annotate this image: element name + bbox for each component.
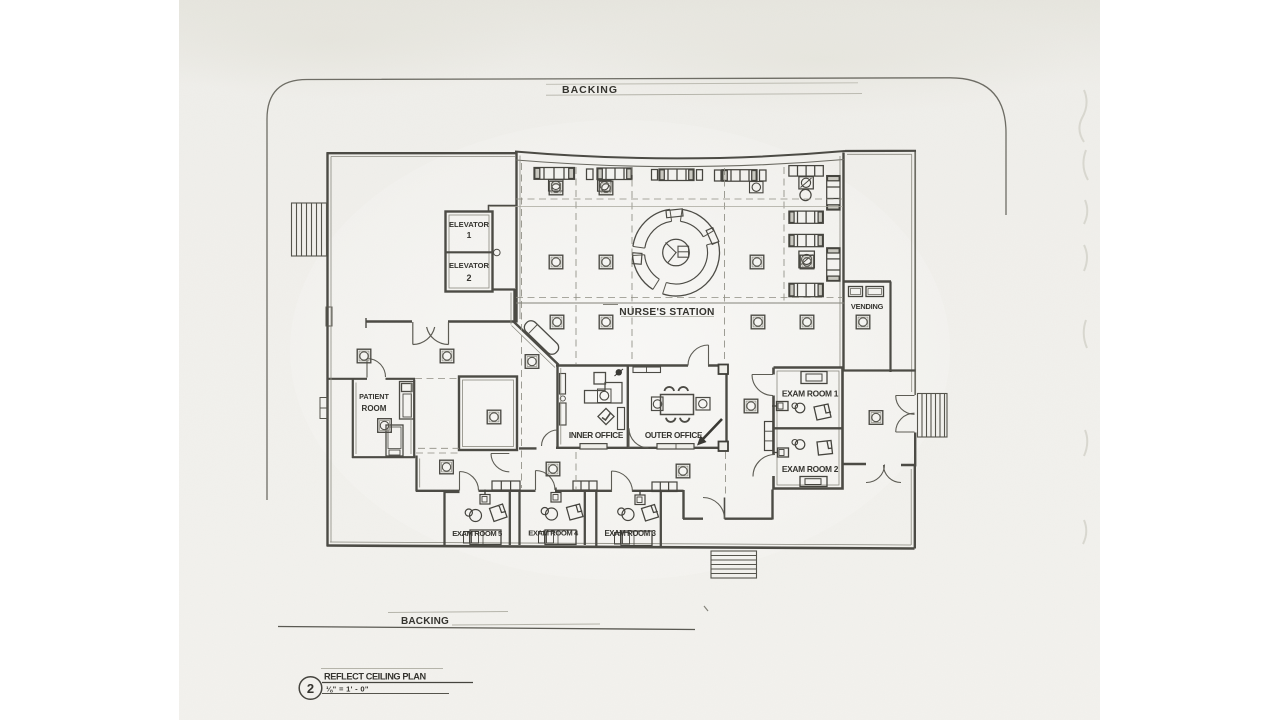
svg-text:EXAM ROOM 2: EXAM ROOM 2 — [782, 464, 839, 474]
svg-text:2: 2 — [466, 273, 471, 283]
svg-text:ROOM: ROOM — [362, 404, 387, 413]
svg-text:ELEVATOR: ELEVATOR — [449, 220, 490, 229]
svg-text:VENDING: VENDING — [851, 302, 884, 311]
svg-text:ELEVATOR: ELEVATOR — [449, 261, 490, 270]
svg-text:EXAM ROOM 4: EXAM ROOM 4 — [528, 529, 579, 538]
svg-text:INNER OFFICE: INNER OFFICE — [569, 431, 624, 440]
svg-text:⅛" = 1' - 0": ⅛" = 1' - 0" — [326, 685, 369, 694]
svg-text:BACKING: BACKING — [401, 616, 449, 627]
svg-text:BACKING: BACKING — [562, 84, 618, 96]
svg-text:2: 2 — [307, 681, 314, 696]
svg-text:EXAM ROOM 5: EXAM ROOM 5 — [452, 529, 503, 538]
svg-text:REFLECT CEILING PLAN: REFLECT CEILING PLAN — [324, 672, 427, 682]
svg-text:PATIENT: PATIENT — [359, 392, 389, 401]
svg-text:EXAM ROOM 1: EXAM ROOM 1 — [782, 389, 839, 399]
svg-text:1: 1 — [467, 230, 472, 240]
svg-text:OUTER OFFICE: OUTER OFFICE — [645, 431, 703, 440]
svg-text:EXAM ROOM 3: EXAM ROOM 3 — [604, 529, 656, 538]
